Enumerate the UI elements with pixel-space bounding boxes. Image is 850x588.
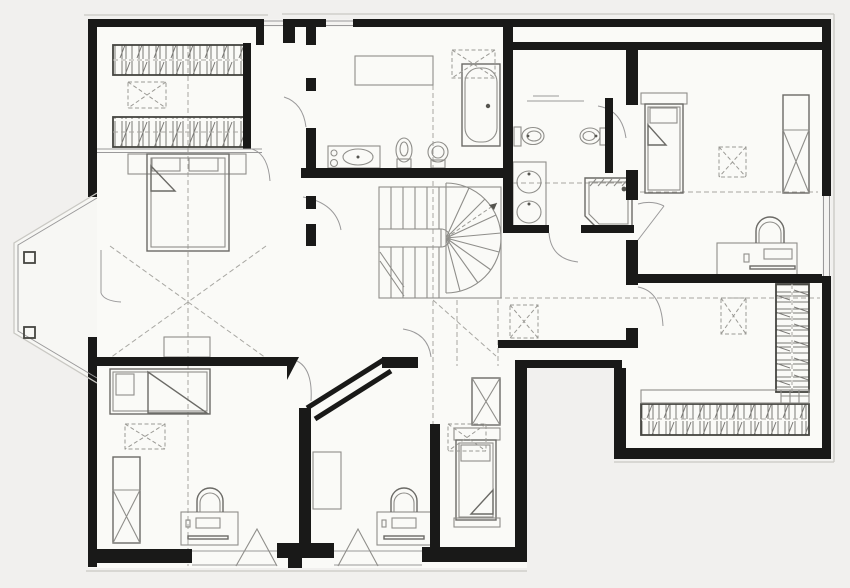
wall-hall-south [498,340,638,348]
plan-root [14,14,834,571]
wall-bottommid-left [299,408,311,547]
wall-bottom-left [88,549,192,563]
wall-hall-stub-south [382,357,418,368]
floorplan-page [0,0,850,588]
wall-bath2-right-b [626,170,638,200]
wall-notch-right [614,368,626,459]
bidet-bath2-dot [595,135,598,138]
wall-knee-right [638,42,822,50]
wall-top-main [353,19,822,27]
wall-bath2-top [513,42,638,50]
wall-bedroom4-right [515,360,527,562]
wall-bath1-left-a [306,27,316,45]
wall-right-mid [631,274,822,283]
wall-bath2-bottom-l [513,225,549,233]
floorplan-canvas [0,0,850,588]
wall-bath1-left-b [306,78,316,91]
wall-hall-stubs-a [306,196,316,209]
sink-bath2-2-tap [528,203,531,206]
wall-topleft-stub [256,19,264,45]
wall-bath1-bottom [301,168,508,178]
bathtub-drain [486,104,490,108]
toilet-bath2-dot [527,135,530,138]
wall-bath2-right-a [626,44,638,105]
wall-top-mid-1 [283,19,326,27]
wall-bath2-bottom-r [581,225,634,233]
bay-window-floor [14,193,97,383]
wall-bottomleft-top [97,357,287,366]
sink-bath2-1-tap [528,173,531,176]
wall-hall-stubs-b [306,224,316,246]
wall-topleft-top [88,19,264,27]
wall-left-upper [88,19,97,197]
wall-left-lower [88,337,97,567]
wall-bath2-right-d [626,328,638,348]
shower-head [622,187,627,192]
wall-top-mid-1-drop [283,27,295,43]
sink-bath1-tap [357,156,360,159]
wall-bottommid-right [430,424,440,547]
wall-bath-divider [503,19,513,233]
wall-bath2-stub [605,98,613,173]
wall-notch-top [518,360,622,368]
wall-closet-right [243,43,251,149]
wall-right-bottom [614,448,831,459]
wall-bottom-mid [422,547,525,562]
